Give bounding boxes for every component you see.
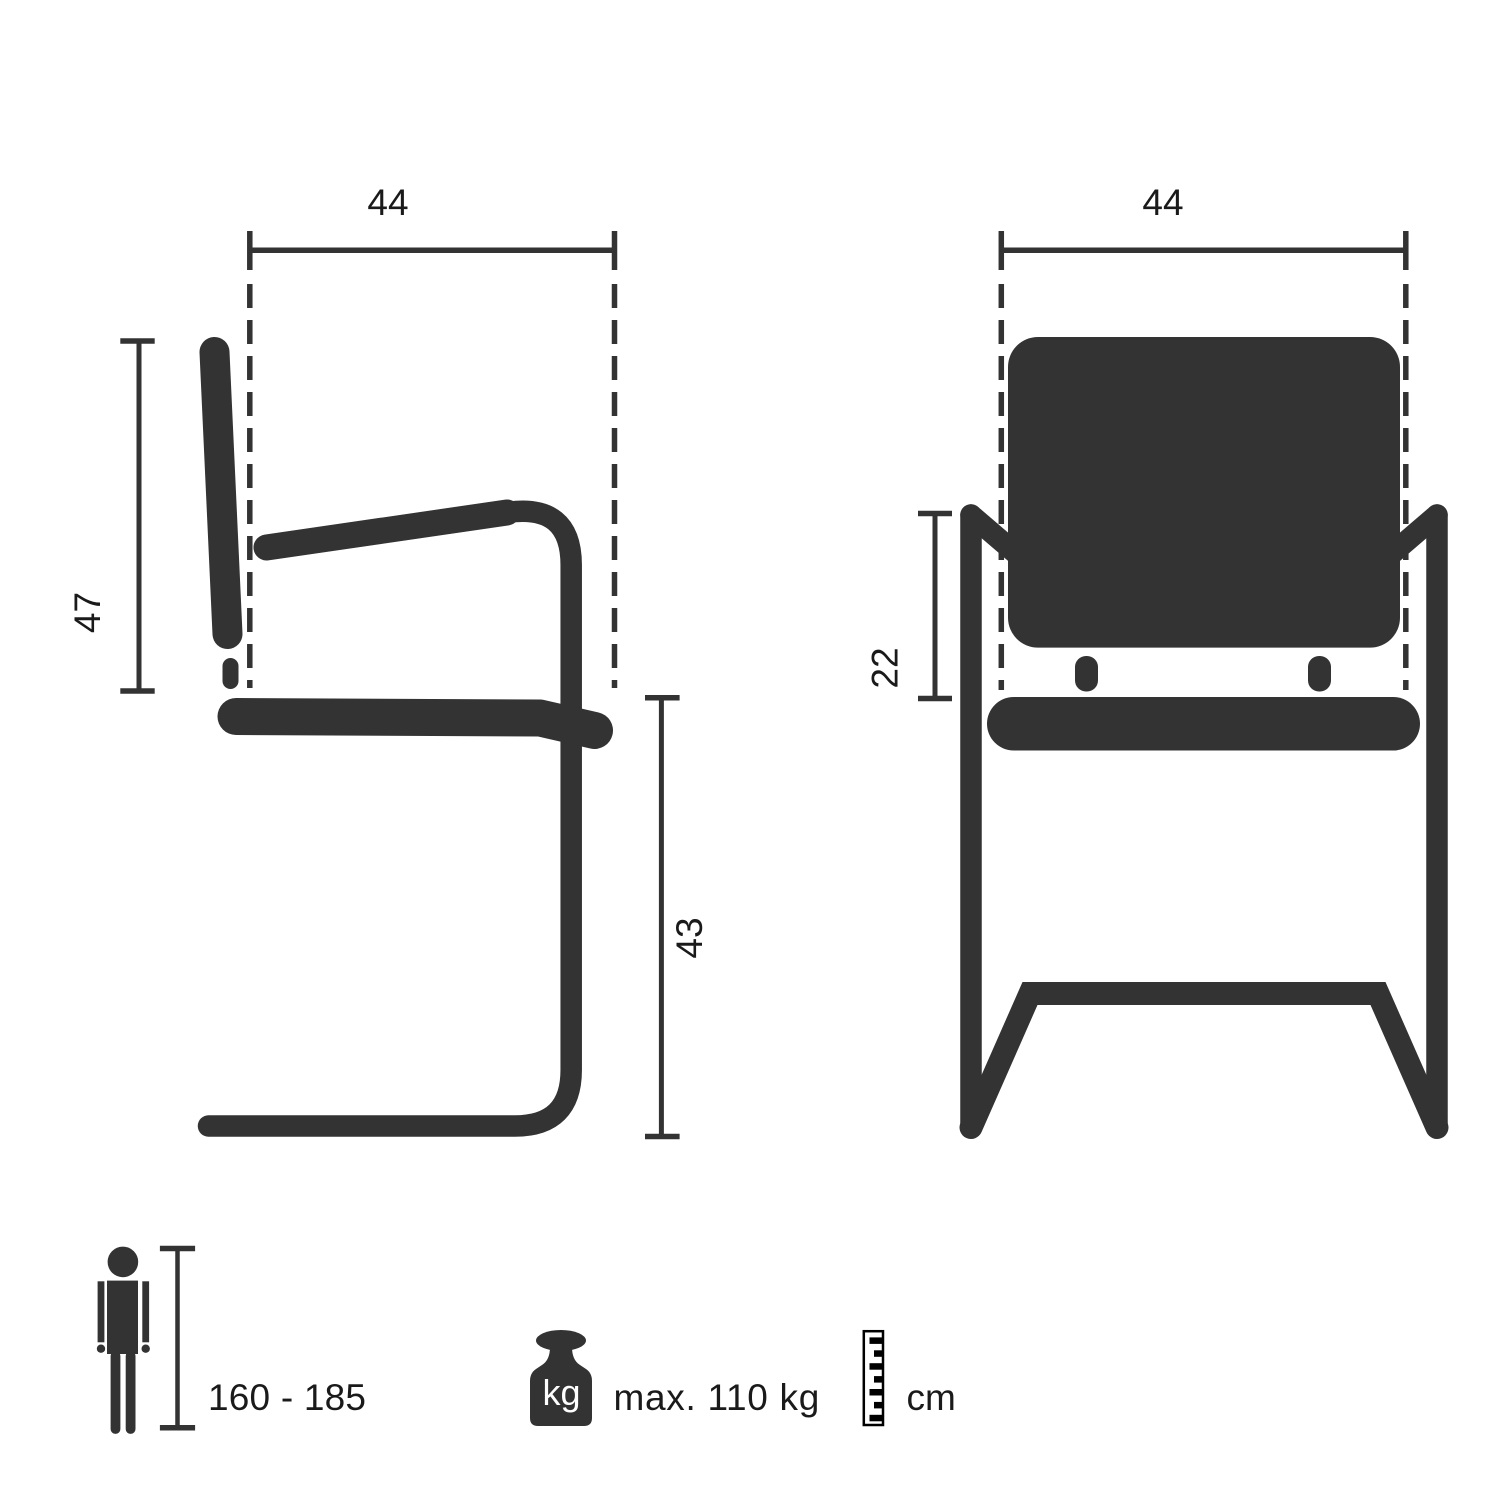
svg-text:max. 110 kg: max. 110 kg xyxy=(614,1377,821,1418)
svg-text:kg: kg xyxy=(542,1372,580,1413)
svg-text:47: 47 xyxy=(67,592,108,633)
svg-text:cm: cm xyxy=(907,1377,956,1418)
svg-text:44: 44 xyxy=(367,182,408,223)
svg-text:160 - 185: 160 - 185 xyxy=(208,1377,366,1418)
svg-text:22: 22 xyxy=(865,647,906,688)
svg-text:44: 44 xyxy=(1142,182,1183,223)
svg-text:43: 43 xyxy=(669,917,710,958)
